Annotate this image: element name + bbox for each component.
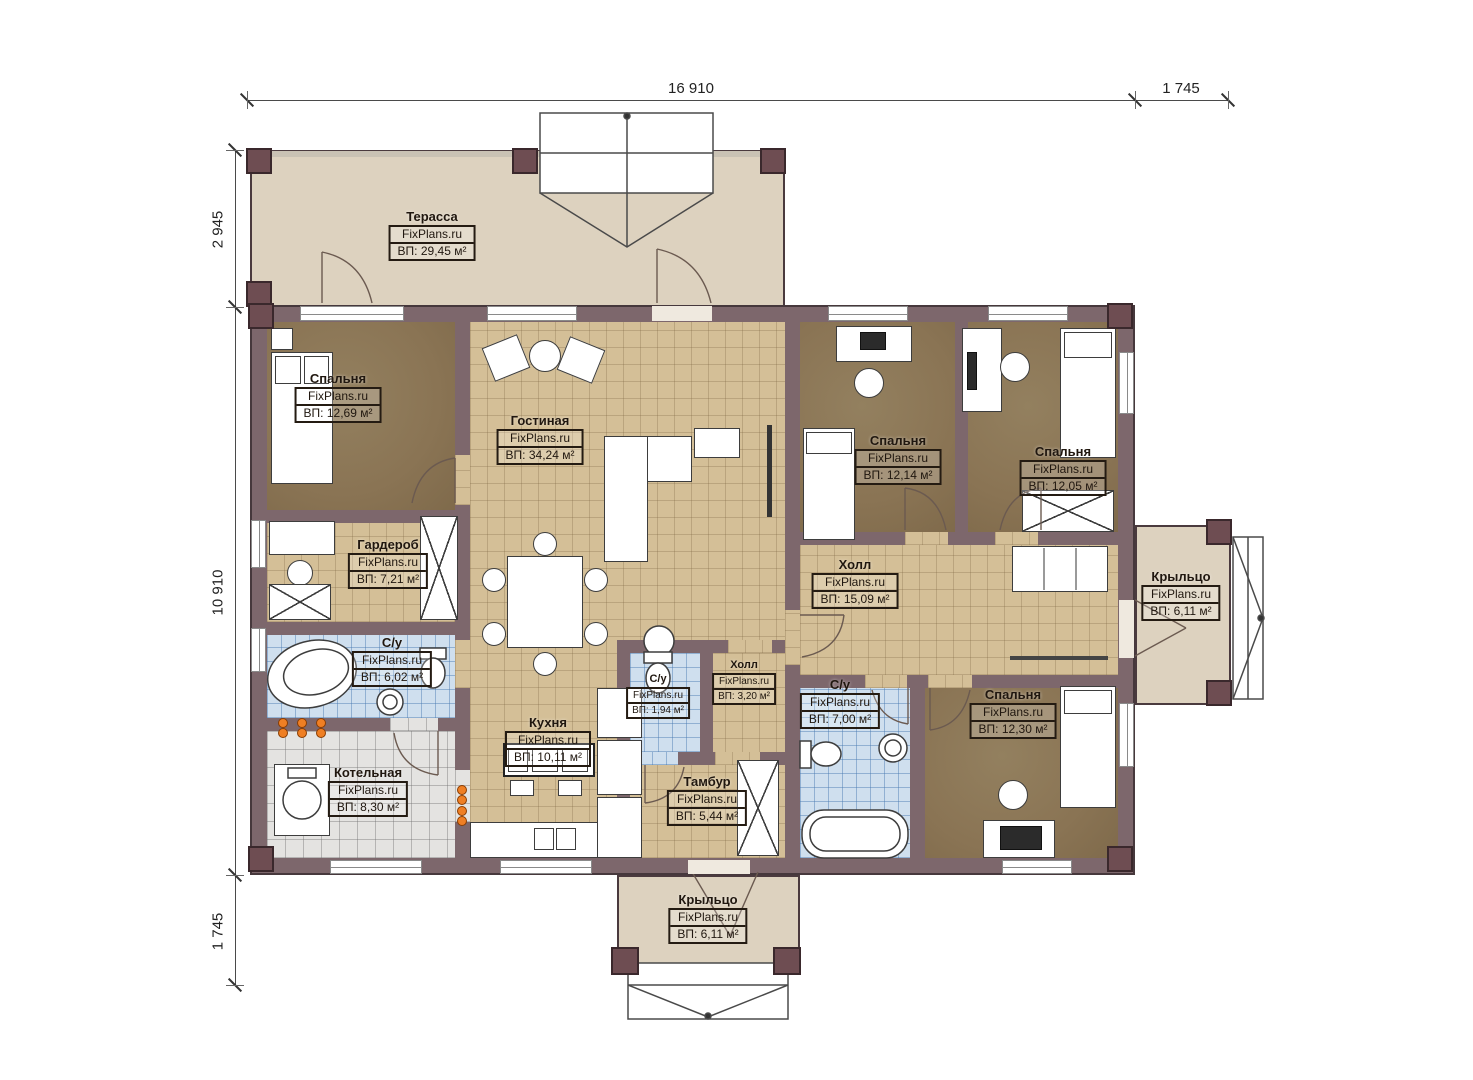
room-label-terrace: Терасса FixPlans.ruВП: 29,45 м² — [389, 210, 476, 261]
chair-icon — [584, 622, 608, 646]
brand-watermark: FixPlans.ru — [814, 575, 897, 592]
column — [611, 947, 639, 975]
door-opening — [905, 532, 948, 545]
brand-watermark: FixPlans.ru — [628, 689, 688, 704]
wall-bath3-bedroom4 — [910, 675, 925, 858]
room-label-boiler-room: Котельная FixPlans.ruВП: 8,30 м² — [328, 766, 408, 817]
desk-chair-icon — [1000, 352, 1030, 382]
brand-watermark: FixPlans.ru — [391, 227, 474, 244]
wall-bath2-hallsmall — [700, 653, 713, 752]
wardrobe-cabinet-icon — [269, 584, 331, 620]
window — [500, 860, 592, 874]
brand-watermark: FixPlans.ru — [972, 705, 1055, 722]
dimension-end — [226, 307, 244, 308]
room-label-bathroom-3: С/у FixPlans.ruВП: 7,00 м² — [800, 678, 880, 729]
tv-stand-icon — [1010, 656, 1108, 660]
bench-divider — [1043, 548, 1045, 590]
stairs-bottom — [628, 963, 788, 1019]
round-table-icon — [529, 340, 561, 372]
sink-basin-icon — [534, 828, 554, 850]
column — [760, 148, 786, 174]
brand-watermark: FixPlans.ru — [802, 695, 878, 712]
room-label-hall: Холл FixPlans.ruВП: 15,09 м² — [812, 558, 899, 609]
wall-right-wing — [785, 322, 800, 858]
wardrobe-cabinet-icon — [1022, 490, 1114, 532]
room-label-kitchen: Кухня FixPlans.ruВП: 10,11 м² — [505, 716, 591, 767]
room-label-porch-bottom: Крыльцо FixPlans.ruВП: 6,11 м² — [668, 893, 747, 944]
window — [1002, 860, 1072, 874]
door-opening — [390, 718, 438, 731]
left-dimension-line — [235, 150, 236, 985]
dimension-end — [226, 150, 244, 151]
column — [246, 148, 272, 174]
room-label-tambour: Тамбур FixPlans.ruВП: 5,44 м² — [667, 775, 747, 826]
entrance-door-opening — [688, 860, 750, 874]
dimension-end — [226, 875, 244, 876]
wall-bath1-boiler — [267, 718, 470, 731]
bench-icon — [1012, 546, 1108, 592]
dimension-label-house-depth: 10 910 — [210, 558, 227, 628]
brand-watermark: FixPlans.ru — [499, 431, 582, 448]
kitchen-cabinet-icon — [597, 740, 642, 795]
boiler-unit-icon — [274, 764, 330, 836]
door-opening — [455, 455, 470, 505]
column — [1206, 519, 1232, 545]
stairs-right — [1233, 537, 1264, 699]
brand-watermark: FixPlans.ru — [330, 783, 406, 800]
dimension-end — [226, 985, 244, 986]
window — [1119, 703, 1134, 767]
window — [251, 520, 266, 568]
monitor-icon — [967, 352, 977, 390]
chair-icon — [482, 568, 506, 592]
dimension-label-width-porch: 1 745 — [1162, 80, 1200, 97]
chair-icon — [533, 652, 557, 676]
door-opening — [455, 770, 470, 822]
door-opening — [785, 610, 800, 665]
window — [1119, 352, 1134, 414]
tv-icon — [767, 425, 772, 517]
column — [512, 148, 538, 174]
column — [248, 303, 274, 329]
stool-icon — [287, 560, 313, 586]
door-opening — [995, 532, 1038, 545]
dimension-end — [1135, 91, 1136, 109]
dressing-table — [269, 521, 335, 555]
desk-chair-icon — [854, 368, 884, 398]
brand-watermark: FixPlans.ru — [507, 733, 589, 750]
column — [1107, 846, 1133, 872]
room-label-hall-small: Холл FixPlans.ruВП: 3,20 м² — [712, 658, 776, 705]
column — [773, 947, 801, 975]
door-opening — [928, 675, 972, 688]
dimension-end — [1228, 91, 1229, 109]
pillow-icon — [806, 432, 852, 454]
room-label-bedroom-4: Спальня FixPlans.ruВП: 12,30 м² — [970, 688, 1057, 739]
brand-watermark: FixPlans.ru — [857, 451, 940, 468]
dimension-label-terrace-depth: 2 945 — [210, 195, 227, 265]
chair-icon — [482, 622, 506, 646]
brand-watermark: FixPlans.ru — [1143, 587, 1218, 604]
room-label-porch-right: Крыльцо FixPlans.ruВП: 6,11 м² — [1141, 570, 1220, 621]
door-opening — [638, 752, 678, 765]
column — [248, 846, 274, 872]
computer-icon — [860, 332, 886, 350]
dimension-label-width-main: 16 910 — [668, 80, 714, 97]
brand-watermark: FixPlans.ru — [714, 675, 774, 690]
floor-plan-canvas: 16 910 1 745 2 945 10 910 1 745 — [0, 0, 1473, 1080]
window — [300, 306, 404, 321]
chair-icon — [533, 532, 557, 556]
dimension-end — [247, 91, 248, 109]
column — [1206, 680, 1232, 706]
brand-watermark: FixPlans.ru — [1022, 462, 1105, 479]
door-opening — [455, 640, 470, 688]
brand-watermark: FixPlans.ru — [297, 389, 380, 406]
window — [487, 306, 577, 321]
wall-wardrobe-bath1 — [267, 622, 470, 635]
dimension-label-porch-depth: 1 745 — [210, 897, 227, 967]
window — [330, 860, 422, 874]
chair-icon — [558, 780, 582, 796]
brand-watermark: FixPlans.ru — [670, 910, 745, 927]
brand-watermark: FixPlans.ru — [350, 555, 426, 572]
porch-door-opening — [1119, 600, 1134, 658]
terrace-door-opening — [652, 306, 712, 321]
window — [988, 306, 1068, 321]
bench-divider — [1075, 548, 1077, 590]
chair-icon — [510, 780, 534, 796]
sofa-icon — [604, 436, 648, 562]
brand-watermark: FixPlans.ru — [354, 653, 430, 670]
brand-watermark: FixPlans.ru — [669, 792, 745, 809]
window — [251, 628, 266, 672]
column — [1107, 303, 1133, 329]
pillow-icon — [1064, 332, 1112, 358]
nightstand — [271, 328, 293, 350]
top-dimension-line — [247, 100, 1228, 101]
room-label-bedroom-1: Спальня FixPlans.ruВП: 12,69 м² — [295, 372, 382, 423]
window — [828, 306, 908, 321]
coffee-table-icon — [694, 428, 740, 458]
room-label-bathroom-2: С/у FixPlans.ruВП: 1,94 м² — [626, 672, 690, 719]
room-label-living-room: Гостиная FixPlans.ruВП: 34,24 м² — [497, 414, 584, 465]
room-label-wardrobe: Гардероб FixPlans.ruВП: 7,21 м² — [348, 538, 428, 589]
dining-table-icon — [507, 556, 583, 648]
room-label-bedroom-3: Спальня FixPlans.ruВП: 12,05 м² — [1020, 445, 1107, 496]
computer-icon — [1000, 826, 1042, 850]
room-label-bathroom-1: С/у FixPlans.ruВП: 6,02 м² — [352, 636, 432, 687]
door-opening — [728, 640, 772, 653]
chair-icon — [584, 568, 608, 592]
fridge-icon — [597, 797, 642, 858]
plant-icon — [998, 780, 1028, 810]
sink-basin-icon — [556, 828, 576, 850]
pillow-icon — [1064, 690, 1112, 714]
room-label-bedroom-2: Спальня FixPlans.ruВП: 12,14 м² — [855, 434, 942, 485]
